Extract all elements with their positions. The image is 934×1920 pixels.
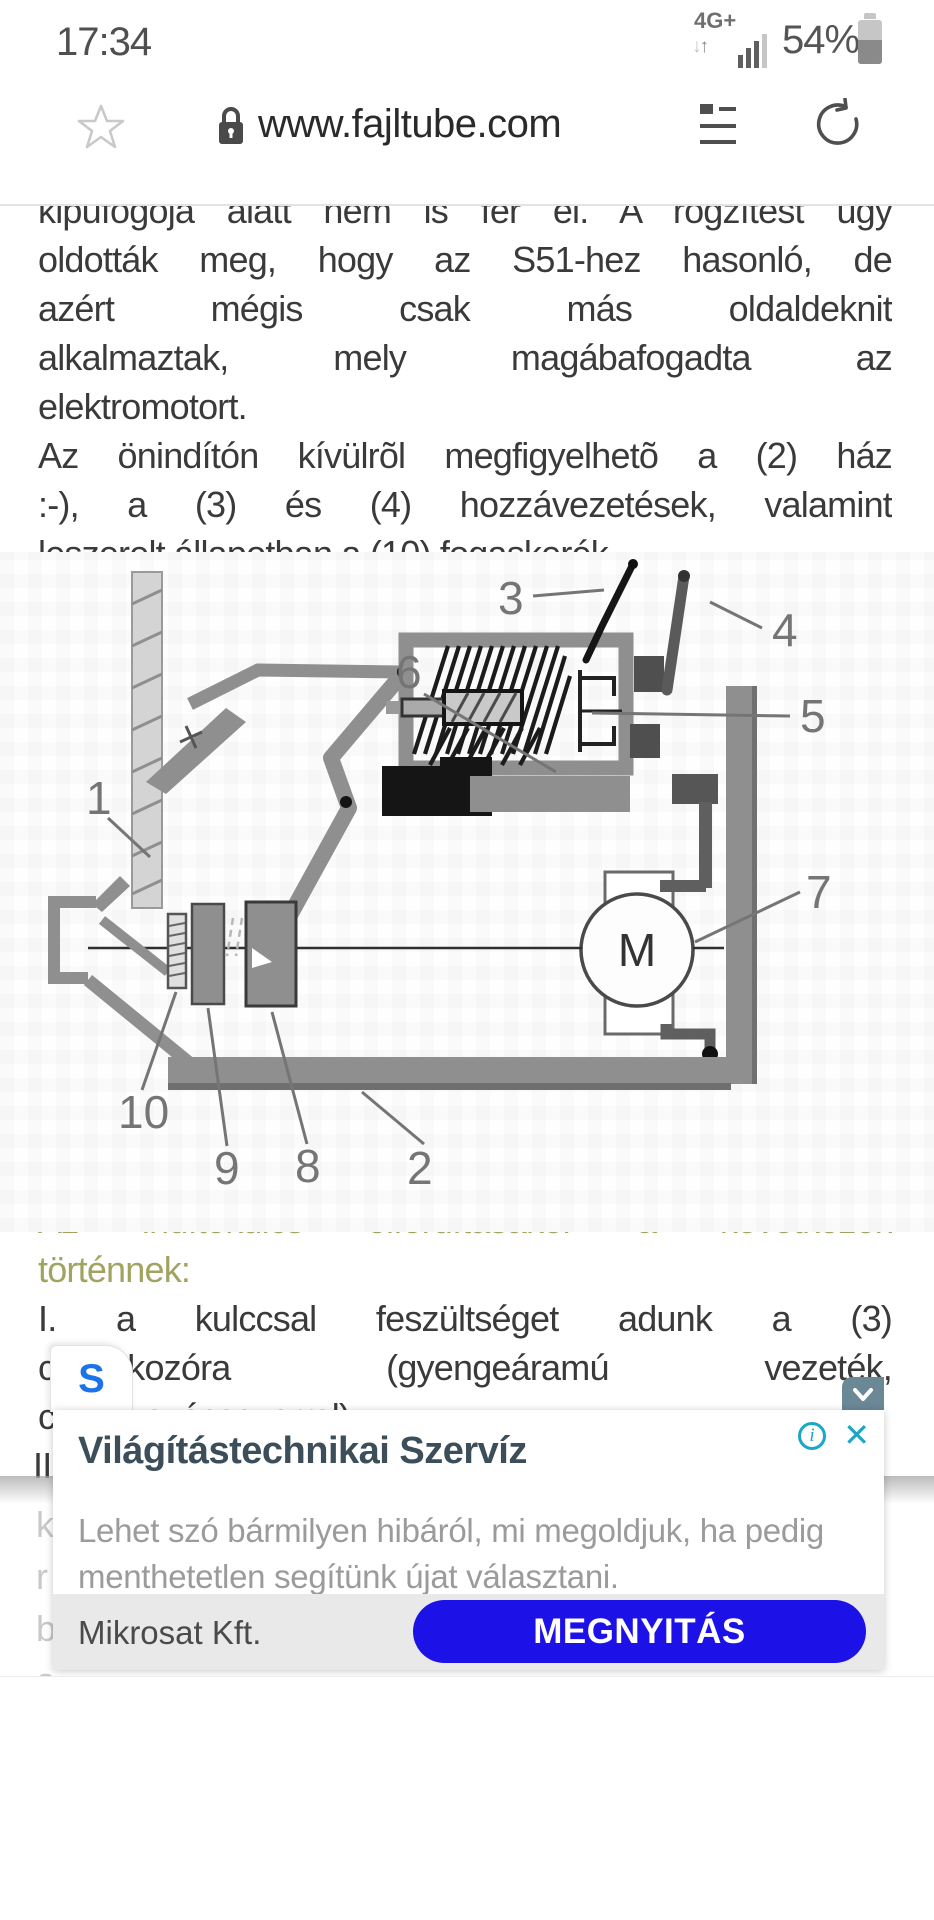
ad-info-icon[interactable]: i [798,1422,826,1450]
reader-mode-icon[interactable] [698,102,752,150]
clock: 17:34 [56,20,151,65]
ad-brand-tab[interactable]: S [50,1345,133,1412]
diagram-label-7: 7 [806,866,832,918]
body-text-line: oldották meg, hogy az S51-hez hasonló, d… [38,235,892,284]
diagram-label-3: 3 [498,572,524,624]
battery-icon [858,13,882,65]
plunger-end [386,701,401,714]
refresh-icon[interactable] [812,98,866,152]
body-text-line: Az önindítón kívülrõl megfigyelhetõ a (2… [38,431,892,480]
url-text[interactable]: www.fajltube.com [258,102,561,147]
starter-motor-diagram-image: M [0,552,934,1232]
solenoid-assembly [386,640,664,768]
android-nav-bar [0,1800,934,1920]
diagram-label-8: 8 [295,1140,321,1192]
data-activity-icon: ↓↑ [692,36,707,58]
phone-screen: kipufogója alatt nem is fér el. A rögzít… [0,0,934,1920]
diagram-label-1: 1 [86,772,112,824]
divider [0,204,934,206]
ad-close-icon[interactable]: ✕ [843,1416,870,1454]
section-heading-line: történnek: [38,1245,892,1294]
battery-percent: 54% [782,18,859,63]
pinion-and-clutch [168,902,296,1006]
motor-label: M [618,924,656,976]
diagram-label-6: 6 [396,646,422,698]
body-text-line: azért mégis csak más oldaldeknit [38,284,892,333]
diagram-label-2: 2 [407,1142,433,1194]
diagram-label-10: 10 [118,1086,169,1138]
ad-body-text: Lehet szó bármilyen hibáról, mi megoldju… [78,1508,858,1600]
body-text-line: I. a kulccsal feszültséget adunk a (3) [38,1294,892,1343]
lock-icon [214,104,248,148]
body-text-line: alkalmaztak, mely magábafogadta az [38,333,892,382]
ad-card[interactable]: Világítástechnikai Szervíz i ✕ Lehet szó… [53,1410,884,1670]
signal-strength-icon [738,30,774,68]
body-text-line: :-), a (3) és (4) hozzávezetések, valami… [38,480,892,529]
ad-advertiser: Mikrosat Kft. [78,1614,261,1652]
ad-brand-letter: S [78,1357,105,1402]
diagram-label-4: 4 [772,604,798,656]
ad-collapse-button[interactable] [842,1377,884,1412]
electric-motor: M [581,872,718,1062]
chevron-down-icon [848,1383,878,1407]
diagram-label-9: 9 [214,1142,240,1194]
network-type-icon: 4G+ [694,8,736,34]
body-text-line: csatlakozóra (gyengeáramú vezeték, [38,1343,892,1392]
status-bar: 17:34 4G+ ↓↑ 54% [0,0,934,90]
body-text-line: elektromotort. [38,382,892,431]
starter-motor-diagram: M [0,552,934,1232]
diagram-label-5: 5 [800,690,826,742]
flywheel-bar [132,572,162,908]
url-bar: www.fajltube.com [0,90,934,204]
bookmark-star-icon[interactable] [76,102,126,152]
ad-title: Világítástechnikai Szervíz [78,1430,527,1473]
ad-footer: Mikrosat Kft. MEGNYITÁS [53,1594,884,1670]
ad-open-button[interactable]: MEGNYITÁS [413,1600,866,1663]
browser-toolbar: 11 Új [0,1676,934,1800]
diagram-number-labels: 1 3 4 5 6 7 10 9 8 2 [86,572,832,1194]
